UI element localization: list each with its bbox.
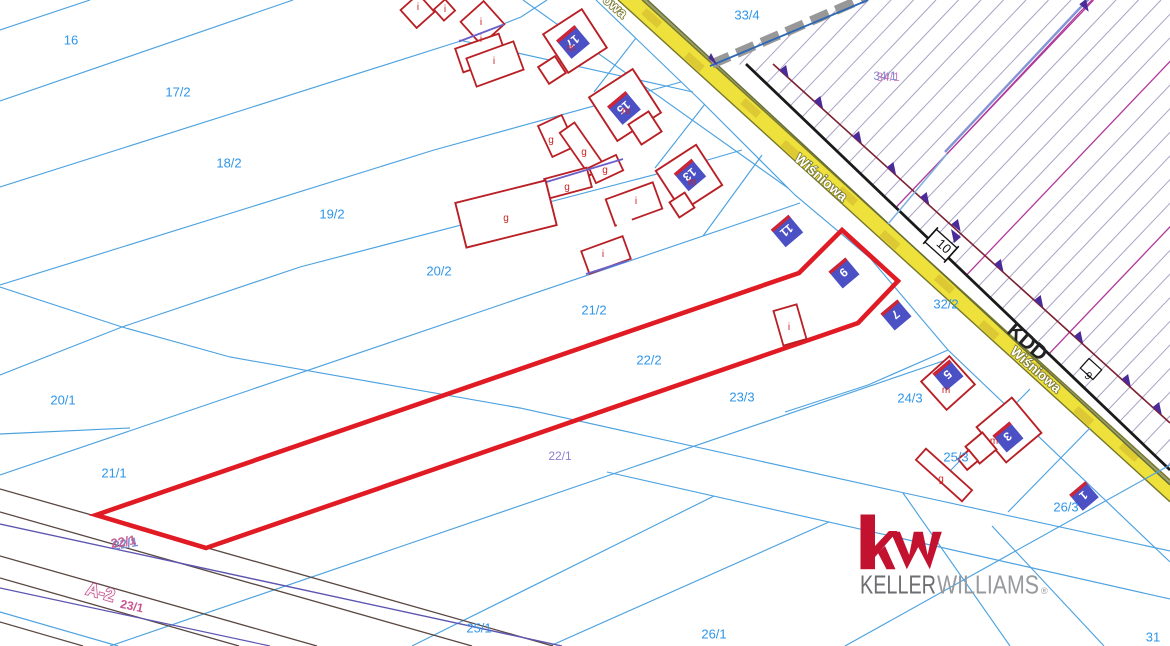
- svg-text:22/2: 22/2: [636, 353, 661, 368]
- svg-text:i: i: [444, 4, 446, 15]
- svg-text:16: 16: [64, 33, 78, 48]
- svg-text:25/1: 25/1: [466, 621, 491, 636]
- svg-text:m: m: [622, 106, 630, 117]
- svg-text:m: m: [942, 385, 950, 396]
- svg-text:g: g: [938, 474, 944, 485]
- svg-text:KELLER: KELLER: [860, 570, 936, 600]
- svg-text:i: i: [417, 2, 419, 13]
- svg-text:®: ®: [1041, 586, 1048, 596]
- svg-text:g: g: [564, 182, 570, 193]
- svg-text:WILLIAMS: WILLIAMS: [937, 570, 1039, 600]
- svg-text:18/2: 18/2: [216, 156, 241, 171]
- svg-text:34/1: 34/1: [876, 70, 900, 84]
- svg-text:17/2: 17/2: [165, 85, 190, 100]
- svg-text:32/2: 32/2: [933, 297, 958, 312]
- svg-text:20/1: 20/1: [50, 393, 75, 408]
- svg-text:i: i: [480, 17, 482, 28]
- svg-text:22/1: 22/1: [548, 449, 572, 463]
- svg-text:i: i: [602, 249, 604, 260]
- svg-text:21/1: 21/1: [101, 466, 126, 481]
- svg-text:24/3: 24/3: [897, 391, 922, 406]
- svg-text:19/2: 19/2: [319, 207, 344, 222]
- svg-text:23/3: 23/3: [729, 390, 754, 405]
- svg-text:25/3: 25/3: [943, 450, 968, 465]
- svg-text:21/2: 21/2: [581, 303, 606, 318]
- svg-text:g: g: [581, 147, 587, 158]
- svg-text:31: 31: [1146, 630, 1160, 645]
- svg-text:g: g: [503, 213, 509, 224]
- svg-text:g: g: [548, 135, 554, 146]
- svg-text:33/4: 33/4: [734, 8, 759, 23]
- svg-text:i: i: [635, 196, 637, 207]
- svg-text:i: i: [480, 34, 482, 45]
- svg-text:i: i: [493, 56, 495, 67]
- svg-text:26/3: 26/3: [1053, 500, 1078, 515]
- svg-text:m: m: [990, 436, 998, 447]
- svg-text:26/1: 26/1: [701, 627, 726, 642]
- svg-text:20/2: 20/2: [426, 264, 451, 279]
- svg-text:i: i: [788, 322, 790, 333]
- svg-text:m: m: [567, 43, 575, 54]
- svg-text:m: m: [688, 177, 696, 188]
- svg-text:g: g: [602, 165, 608, 176]
